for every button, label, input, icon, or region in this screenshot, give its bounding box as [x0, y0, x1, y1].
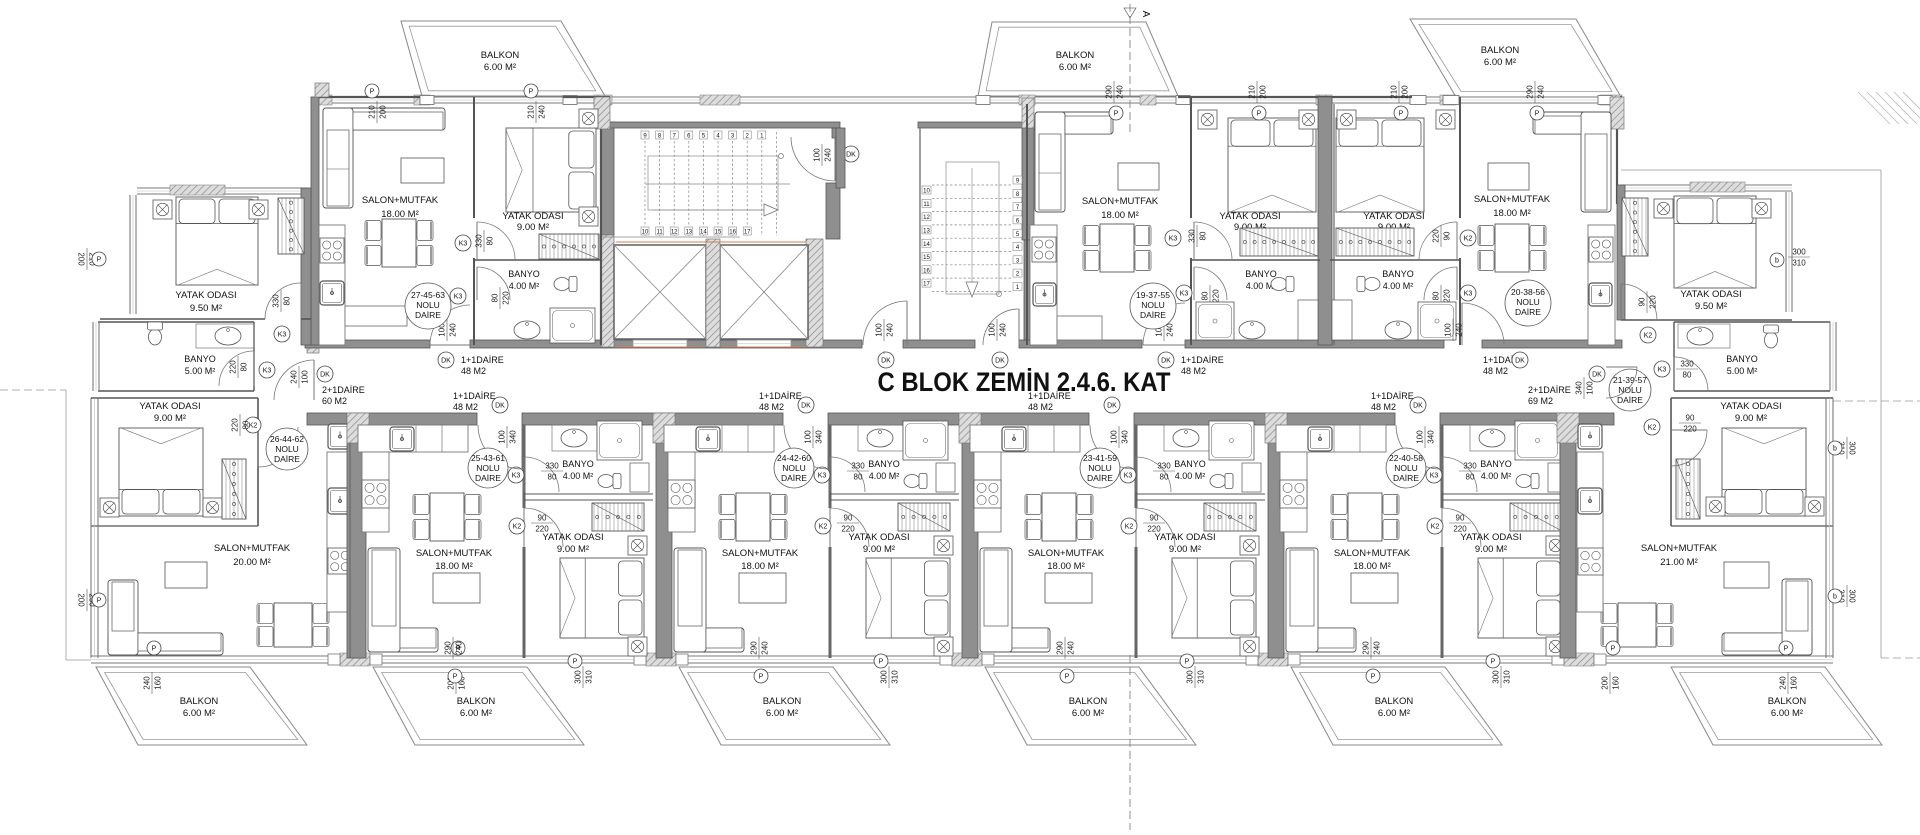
- svg-text:P: P: [1065, 673, 1070, 680]
- svg-text:BANYO: BANYO: [184, 354, 216, 364]
- svg-text:4.00 M²: 4.00 M²: [563, 471, 594, 481]
- svg-text:300: 300: [1492, 670, 1501, 684]
- svg-text:DK: DK: [1592, 371, 1602, 378]
- svg-text:DAİRE: DAİRE: [1087, 473, 1113, 483]
- svg-text:13: 13: [923, 229, 930, 235]
- svg-text:BALKON: BALKON: [1056, 50, 1095, 61]
- svg-text:18.00 M²: 18.00 M²: [1101, 210, 1139, 221]
- svg-text:NOLU: NOLU: [416, 300, 440, 310]
- svg-text:80: 80: [1160, 473, 1169, 482]
- svg-text:26-44-62: 26-44-62: [270, 434, 304, 444]
- svg-text:80: 80: [240, 362, 249, 371]
- svg-text:340: 340: [815, 430, 824, 444]
- svg-text:DK: DK: [881, 357, 891, 364]
- svg-text:9.00 M²: 9.00 M²: [154, 413, 186, 424]
- svg-text:K3: K3: [512, 472, 521, 479]
- svg-text:21.00 M²: 21.00 M²: [1660, 557, 1698, 568]
- svg-text:NOLU: NOLU: [476, 463, 500, 473]
- svg-text:80: 80: [1466, 473, 1475, 482]
- svg-text:48 M2: 48 M2: [759, 402, 784, 412]
- svg-text:210: 210: [368, 105, 377, 119]
- svg-text:10: 10: [642, 230, 649, 236]
- svg-text:K3: K3: [1658, 366, 1667, 373]
- svg-text:K2: K2: [1464, 235, 1473, 242]
- svg-text:6.00 M²: 6.00 M²: [766, 708, 798, 719]
- svg-text:340: 340: [1575, 381, 1584, 395]
- svg-text:b: b: [1833, 445, 1837, 452]
- svg-text:300: 300: [1792, 248, 1806, 257]
- svg-text:A: A: [1140, 11, 1151, 18]
- svg-text:NOLU: NOLU: [1516, 297, 1540, 307]
- svg-text:5.00 M²: 5.00 M²: [1727, 366, 1758, 376]
- svg-text:P: P: [1114, 110, 1119, 117]
- svg-text:200: 200: [379, 105, 388, 119]
- svg-text:340: 340: [509, 430, 518, 444]
- svg-text:220: 220: [1683, 425, 1697, 434]
- svg-text:300: 300: [1848, 589, 1857, 603]
- svg-text:80: 80: [491, 293, 500, 302]
- svg-text:6.00 M²: 6.00 M²: [1059, 62, 1091, 73]
- svg-text:DK: DK: [801, 402, 811, 409]
- svg-text:310: 310: [1197, 670, 1206, 684]
- svg-text:K2: K2: [1431, 523, 1440, 530]
- svg-text:240: 240: [143, 676, 152, 690]
- svg-text:290: 290: [1526, 85, 1535, 99]
- svg-text:BANYO: BANYO: [1174, 459, 1206, 469]
- svg-text:P: P: [759, 673, 764, 680]
- svg-text:220: 220: [231, 418, 240, 432]
- svg-text:YATAK ODASI: YATAK ODASI: [1460, 532, 1521, 543]
- svg-text:DK: DK: [995, 357, 1005, 364]
- svg-text:80: 80: [486, 236, 495, 245]
- svg-text:BANYO: BANYO: [1382, 269, 1414, 279]
- svg-text:P: P: [1535, 110, 1540, 117]
- svg-text:1+1DAİRE: 1+1DAİRE: [1371, 391, 1414, 401]
- svg-text:220: 220: [502, 291, 511, 305]
- svg-text:P: P: [1611, 645, 1616, 652]
- svg-text:19-37-55: 19-37-55: [1136, 290, 1170, 300]
- svg-text:P: P: [529, 88, 534, 95]
- svg-text:YATAK ODASI: YATAK ODASI: [502, 211, 563, 222]
- svg-text:240: 240: [1166, 323, 1175, 337]
- svg-text:K3: K3: [1169, 235, 1178, 242]
- svg-text:P: P: [453, 673, 458, 680]
- svg-text:290: 290: [1362, 641, 1371, 655]
- svg-text:K3: K3: [1124, 472, 1133, 479]
- svg-text:300: 300: [574, 670, 583, 684]
- svg-text:48 M2: 48 M2: [453, 402, 478, 412]
- svg-text:1+1DAİRE: 1+1DAİRE: [1181, 355, 1224, 365]
- svg-text:18.00 M²: 18.00 M²: [1047, 561, 1085, 572]
- svg-text:340: 340: [1121, 430, 1130, 444]
- svg-text:6.00 M²: 6.00 M²: [460, 708, 492, 719]
- svg-text:80: 80: [1201, 291, 1210, 300]
- svg-text:27-45-63: 27-45-63: [411, 290, 445, 300]
- svg-text:DAİRE: DAİRE: [781, 473, 807, 483]
- svg-text:BALKON: BALKON: [763, 696, 802, 707]
- svg-text:b: b: [1775, 257, 1779, 264]
- svg-text:18.00 M²: 18.00 M²: [1353, 561, 1391, 572]
- svg-text:b: b: [1833, 593, 1837, 600]
- svg-text:6.00 M²: 6.00 M²: [183, 708, 215, 719]
- svg-text:23-41-59: 23-41-59: [1083, 453, 1117, 463]
- svg-text:100: 100: [1110, 430, 1119, 444]
- svg-text:240: 240: [1537, 85, 1546, 99]
- svg-text:K3: K3: [1464, 290, 1473, 297]
- svg-text:48 M2: 48 M2: [1371, 402, 1396, 412]
- svg-text:5.00 M²: 5.00 M²: [185, 366, 216, 376]
- svg-text:K2: K2: [1648, 424, 1657, 431]
- svg-text:K3: K3: [278, 331, 287, 338]
- svg-text:16: 16: [923, 268, 930, 274]
- svg-text:100: 100: [1416, 430, 1425, 444]
- svg-text:80: 80: [1432, 291, 1441, 300]
- svg-text:330: 330: [1188, 229, 1197, 243]
- svg-text:P: P: [1257, 110, 1262, 117]
- svg-text:18.00 M²: 18.00 M²: [741, 561, 779, 572]
- svg-text:160: 160: [154, 676, 163, 690]
- svg-text:330: 330: [1680, 360, 1694, 369]
- svg-text:310: 310: [1792, 259, 1806, 268]
- svg-text:240: 240: [455, 641, 464, 655]
- svg-text:330: 330: [545, 462, 559, 471]
- svg-text:80: 80: [1683, 371, 1692, 380]
- svg-text:16: 16: [729, 230, 736, 236]
- svg-text:9.00 M²: 9.00 M²: [557, 544, 589, 555]
- svg-text:17: 17: [744, 230, 751, 236]
- svg-text:DAİRE: DAİRE: [475, 473, 501, 483]
- svg-text:NOLU: NOLU: [1141, 300, 1165, 310]
- svg-text:NOLU: NOLU: [782, 463, 806, 473]
- svg-text:SALON+MUTFAK: SALON+MUTFAK: [1334, 548, 1411, 559]
- svg-text:18.00 M²: 18.00 M²: [435, 561, 473, 572]
- svg-text:100: 100: [875, 323, 884, 337]
- svg-text:9.00 M²: 9.00 M²: [1475, 544, 1507, 555]
- svg-text:290: 290: [1105, 85, 1114, 99]
- svg-text:80: 80: [854, 473, 863, 482]
- svg-text:P: P: [1371, 673, 1376, 680]
- svg-text:DK: DK: [495, 402, 505, 409]
- svg-text:20.00 M²: 20.00 M²: [233, 557, 271, 568]
- svg-text:240: 240: [1373, 641, 1382, 655]
- svg-text:18.00 M²: 18.00 M²: [1493, 208, 1531, 219]
- svg-text:100: 100: [1444, 323, 1453, 337]
- svg-text:300: 300: [880, 670, 889, 684]
- svg-text:P: P: [1399, 110, 1404, 117]
- svg-text:SALON+MUTFAK: SALON+MUTFAK: [1082, 196, 1159, 207]
- svg-text:100: 100: [804, 430, 813, 444]
- svg-text:80: 80: [1199, 231, 1208, 240]
- svg-text:9.50 M²: 9.50 M²: [1695, 301, 1727, 312]
- svg-text:240: 240: [449, 323, 458, 337]
- svg-text:K3: K3: [459, 240, 468, 247]
- svg-text:340: 340: [1427, 430, 1436, 444]
- svg-text:80: 80: [548, 473, 557, 482]
- svg-text:200: 200: [1601, 676, 1610, 690]
- svg-text:15: 15: [715, 230, 722, 236]
- svg-text:SALON+MUTFAK: SALON+MUTFAK: [214, 543, 291, 554]
- svg-text:P: P: [1784, 645, 1789, 652]
- svg-text:BALKON: BALKON: [1069, 696, 1108, 707]
- svg-text:1+1DAİRE: 1+1DAİRE: [453, 391, 496, 401]
- svg-text:2+1DAİRE: 2+1DAİRE: [322, 385, 365, 395]
- svg-text:4.00 M²: 4.00 M²: [1175, 471, 1206, 481]
- svg-text:BALKON: BALKON: [1481, 45, 1520, 56]
- svg-text:9.00 M²: 9.00 M²: [1735, 413, 1767, 424]
- svg-text:240: 240: [761, 641, 770, 655]
- svg-text:K3: K3: [1430, 472, 1439, 479]
- svg-text:220: 220: [1432, 229, 1441, 243]
- svg-text:BANYO: BANYO: [1480, 459, 1512, 469]
- svg-text:300: 300: [1186, 670, 1195, 684]
- svg-text:1+1DAİRE: 1+1DAİRE: [759, 391, 802, 401]
- svg-text:6.00 M²: 6.00 M²: [1072, 708, 1104, 719]
- svg-text:YATAK ODASI: YATAK ODASI: [1154, 532, 1215, 543]
- svg-text:90: 90: [1686, 414, 1695, 423]
- svg-text:BANYO: BANYO: [562, 459, 594, 469]
- svg-text:YATAK ODASI: YATAK ODASI: [1680, 289, 1741, 300]
- svg-text:12: 12: [923, 215, 930, 221]
- svg-text:SALON+MUTFAK: SALON+MUTFAK: [1474, 194, 1551, 205]
- svg-text:220: 220: [1649, 295, 1658, 309]
- svg-text:290: 290: [444, 641, 453, 655]
- svg-text:9.00 M²: 9.00 M²: [1169, 544, 1201, 555]
- svg-text:200: 200: [77, 593, 86, 607]
- svg-text:SALON+MUTFAK: SALON+MUTFAK: [722, 548, 799, 559]
- svg-text:11: 11: [656, 230, 663, 236]
- svg-text:10: 10: [923, 189, 930, 195]
- svg-text:100: 100: [813, 148, 822, 162]
- svg-text:BANYO: BANYO: [508, 269, 540, 279]
- svg-text:9.00 M²: 9.00 M²: [517, 222, 549, 233]
- svg-text:90: 90: [1150, 514, 1159, 523]
- svg-text:330: 330: [1157, 462, 1171, 471]
- svg-text:6.00 M²: 6.00 M²: [1378, 708, 1410, 719]
- svg-text:210: 210: [527, 105, 536, 119]
- svg-text:330: 330: [851, 462, 865, 471]
- svg-text:P: P: [1185, 658, 1190, 665]
- svg-text:21-39-57: 21-39-57: [1613, 375, 1647, 385]
- svg-text:BALKON: BALKON: [180, 696, 219, 707]
- svg-text:6.00 M²: 6.00 M²: [1484, 57, 1516, 68]
- svg-text:YATAK ODASI: YATAK ODASI: [175, 290, 236, 301]
- svg-text:200: 200: [77, 252, 86, 266]
- svg-text:BANYO: BANYO: [1245, 269, 1277, 279]
- svg-text:K3: K3: [1180, 290, 1189, 297]
- svg-text:80: 80: [242, 420, 251, 429]
- svg-text:DAİRE: DAİRE: [415, 310, 441, 320]
- svg-text:12: 12: [671, 230, 678, 236]
- svg-text:310: 310: [891, 670, 900, 684]
- svg-text:NOLU: NOLU: [275, 444, 299, 454]
- svg-text:330: 330: [272, 294, 281, 308]
- svg-text:4.00 M²: 4.00 M²: [1481, 471, 1512, 481]
- svg-text:9.00 M²: 9.00 M²: [863, 544, 895, 555]
- svg-text:240: 240: [1455, 323, 1464, 337]
- svg-text:9.50 M²: 9.50 M²: [190, 303, 222, 314]
- svg-text:DK: DK: [1413, 402, 1423, 409]
- svg-text:18.00 M²: 18.00 M²: [381, 209, 419, 220]
- svg-text:SALON+MUTFAK: SALON+MUTFAK: [1641, 543, 1718, 554]
- svg-text:15: 15: [923, 255, 930, 261]
- svg-text:200: 200: [1401, 85, 1410, 99]
- svg-text:DAİRE: DAİRE: [1515, 307, 1541, 317]
- svg-text:69 M2: 69 M2: [1528, 396, 1553, 406]
- svg-text:1+1DAİRE: 1+1DAİRE: [461, 355, 504, 365]
- svg-text:DK: DK: [1107, 402, 1117, 409]
- svg-text:DAİRE: DAİRE: [1617, 395, 1643, 405]
- svg-text:P: P: [1491, 658, 1496, 665]
- svg-text:240: 240: [1116, 85, 1125, 99]
- svg-text:240: 240: [886, 323, 895, 337]
- svg-text:2+1DAİRE: 2+1DAİRE: [1528, 385, 1571, 395]
- svg-text:BALKON: BALKON: [481, 50, 520, 61]
- svg-text:90: 90: [844, 514, 853, 523]
- svg-text:K2: K2: [513, 523, 522, 530]
- svg-text:DK: DK: [441, 357, 451, 364]
- svg-text:NOLU: NOLU: [1088, 463, 1112, 473]
- svg-text:310: 310: [585, 670, 594, 684]
- svg-text:90: 90: [1443, 231, 1452, 240]
- svg-text:48 M2: 48 M2: [461, 366, 486, 376]
- svg-text:BALKON: BALKON: [1768, 696, 1807, 707]
- svg-text:4.00 M²: 4.00 M²: [1383, 281, 1414, 291]
- svg-text:20-38-56: 20-38-56: [1511, 287, 1545, 297]
- svg-text:100: 100: [498, 430, 507, 444]
- svg-text:80: 80: [283, 296, 292, 305]
- svg-text:YATAK ODASI: YATAK ODASI: [1720, 401, 1781, 412]
- svg-text:14: 14: [700, 230, 707, 236]
- svg-text:C BLOK ZEMİN 2.4.6. KAT: C BLOK ZEMİN 2.4.6. KAT: [878, 367, 1171, 397]
- svg-text:220: 220: [1212, 289, 1221, 303]
- svg-text:48 M2: 48 M2: [1028, 402, 1053, 412]
- svg-text:BALKON: BALKON: [1375, 696, 1414, 707]
- svg-text:1+1DAİRE: 1+1DAİRE: [1028, 391, 1071, 401]
- svg-text:SALON+MUTFAK: SALON+MUTFAK: [416, 548, 493, 559]
- svg-text:DK: DK: [846, 151, 856, 158]
- svg-text:P: P: [573, 658, 578, 665]
- svg-text:220: 220: [229, 360, 238, 374]
- svg-text:K2: K2: [1644, 332, 1653, 339]
- svg-text:11: 11: [923, 202, 930, 208]
- svg-text:K3: K3: [263, 367, 272, 374]
- svg-text:P: P: [97, 597, 102, 604]
- svg-text:SALON+MUTFAK: SALON+MUTFAK: [362, 195, 439, 206]
- svg-text:SALON+MUTFAK: SALON+MUTFAK: [1028, 548, 1105, 559]
- svg-text:330: 330: [1463, 462, 1477, 471]
- svg-text:6.00 M²: 6.00 M²: [484, 62, 516, 73]
- svg-text:310: 310: [1503, 670, 1512, 684]
- svg-text:200: 200: [1259, 85, 1268, 99]
- svg-text:K2: K2: [819, 523, 828, 530]
- svg-text:240: 240: [290, 370, 299, 384]
- svg-text:YATAK ODASI: YATAK ODASI: [542, 532, 603, 543]
- svg-text:17: 17: [923, 282, 930, 288]
- svg-text:6.00 M²: 6.00 M²: [1771, 708, 1803, 719]
- svg-text:100: 100: [988, 323, 997, 337]
- svg-text:240: 240: [538, 105, 547, 119]
- svg-text:240: 240: [1067, 641, 1076, 655]
- svg-text:290: 290: [1056, 641, 1065, 655]
- svg-text:90: 90: [538, 514, 547, 523]
- svg-text:DK: DK: [320, 371, 330, 378]
- svg-text:48 M2: 48 M2: [1483, 366, 1508, 376]
- svg-text:290: 290: [750, 641, 759, 655]
- svg-text:220: 220: [1443, 289, 1452, 303]
- svg-text:DAİRE: DAİRE: [1140, 310, 1166, 320]
- svg-text:P: P: [370, 88, 375, 95]
- svg-text:100: 100: [301, 370, 310, 384]
- svg-text:25-43-61: 25-43-61: [471, 453, 505, 463]
- svg-text:DK: DK: [1515, 357, 1525, 364]
- svg-text:4.00 M²: 4.00 M²: [869, 471, 900, 481]
- svg-text:240: 240: [824, 148, 833, 162]
- svg-text:DAİRE: DAİRE: [1393, 473, 1419, 483]
- svg-text:13: 13: [685, 230, 692, 236]
- svg-text:210: 210: [1248, 85, 1257, 99]
- svg-text:P: P: [879, 658, 884, 665]
- svg-text:48 M2: 48 M2: [1181, 366, 1206, 376]
- svg-text:K3: K3: [454, 293, 463, 300]
- svg-text:24-42-60: 24-42-60: [777, 453, 811, 463]
- svg-text:BALKON: BALKON: [457, 696, 496, 707]
- svg-text:60 M2: 60 M2: [322, 396, 347, 406]
- svg-text:P: P: [97, 256, 102, 263]
- svg-text:210: 210: [1390, 85, 1399, 99]
- svg-text:K3: K3: [818, 472, 827, 479]
- svg-text:100: 100: [1586, 381, 1595, 395]
- svg-text:160: 160: [1612, 676, 1621, 690]
- svg-text:4.00 M²: 4.00 M²: [509, 281, 540, 291]
- svg-text:DAİRE: DAİRE: [274, 454, 300, 464]
- svg-text:14: 14: [923, 242, 930, 248]
- svg-text:P: P: [152, 645, 157, 652]
- svg-text:22-40-58: 22-40-58: [1389, 453, 1423, 463]
- svg-text:300: 300: [1848, 441, 1857, 455]
- svg-text:YATAK ODASI: YATAK ODASI: [139, 401, 200, 412]
- svg-text:90: 90: [1456, 514, 1465, 523]
- svg-text:240: 240: [999, 323, 1008, 337]
- svg-text:BANYO: BANYO: [1726, 354, 1758, 364]
- svg-text:90: 90: [1638, 297, 1647, 306]
- svg-text:NOLU: NOLU: [1394, 463, 1418, 473]
- svg-text:K2: K2: [1125, 523, 1134, 530]
- svg-text:BANYO: BANYO: [868, 459, 900, 469]
- svg-text:160: 160: [1790, 676, 1799, 690]
- svg-text:YATAK ODASI: YATAK ODASI: [1219, 211, 1280, 222]
- svg-text:330: 330: [475, 234, 484, 248]
- svg-text:DK: DK: [1161, 357, 1171, 364]
- svg-text:240: 240: [1779, 676, 1788, 690]
- svg-text:YATAK ODASI: YATAK ODASI: [848, 532, 909, 543]
- svg-text:YATAK ODASI: YATAK ODASI: [1363, 211, 1424, 222]
